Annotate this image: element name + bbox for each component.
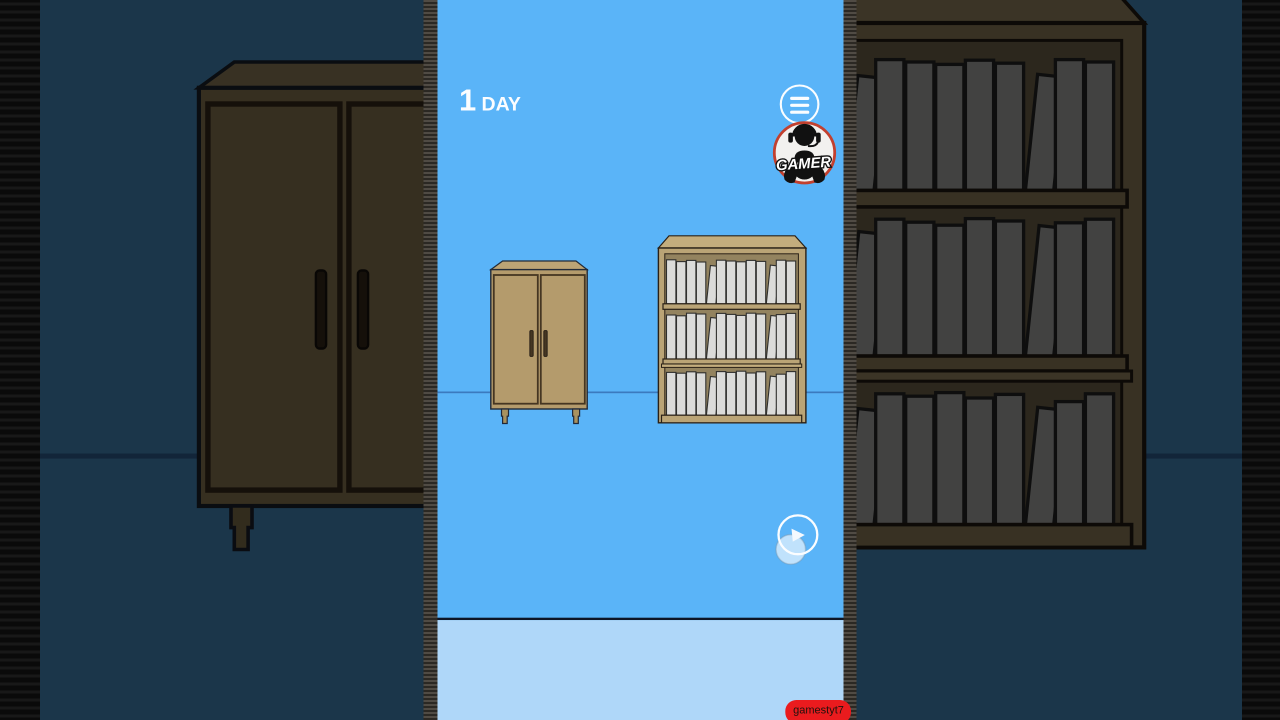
svg-text:gamestyt7: gamestyt7 xyxy=(793,705,844,717)
